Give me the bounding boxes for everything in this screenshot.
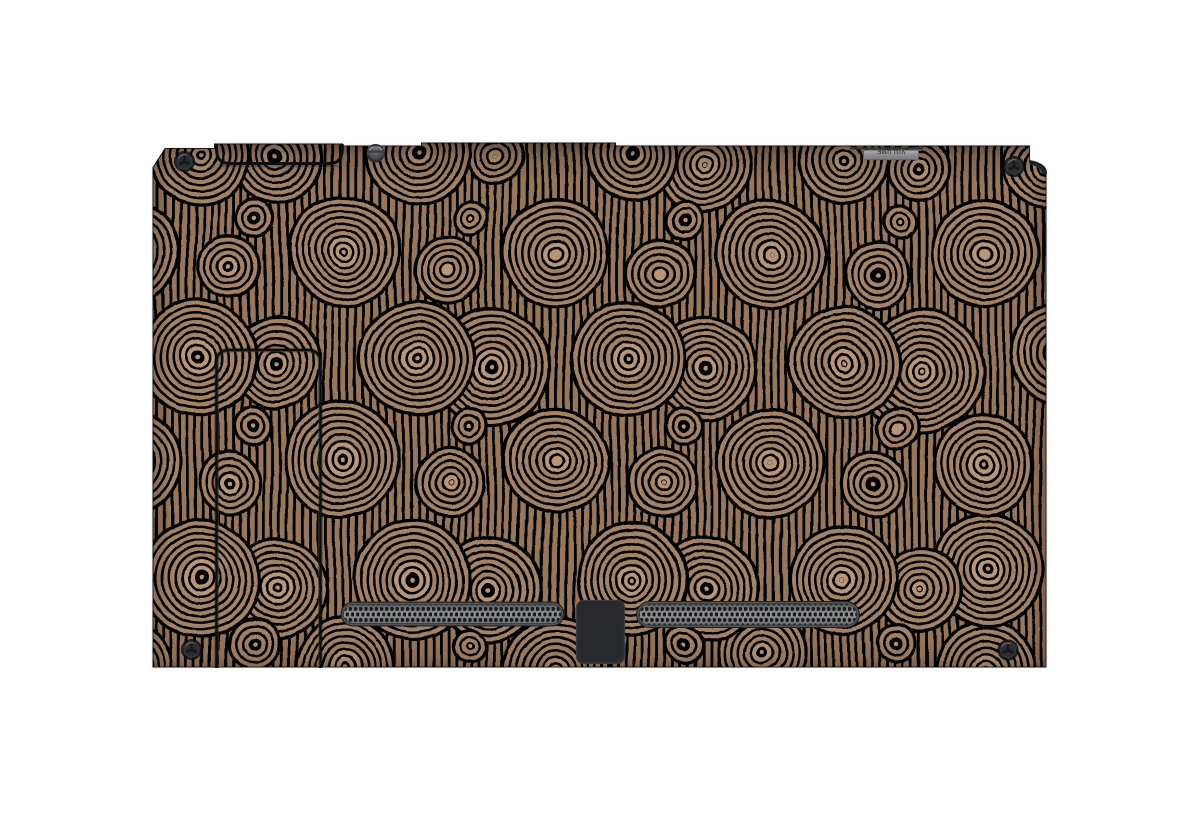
svg-text:VOLUME: VOLUME (877, 148, 906, 154)
